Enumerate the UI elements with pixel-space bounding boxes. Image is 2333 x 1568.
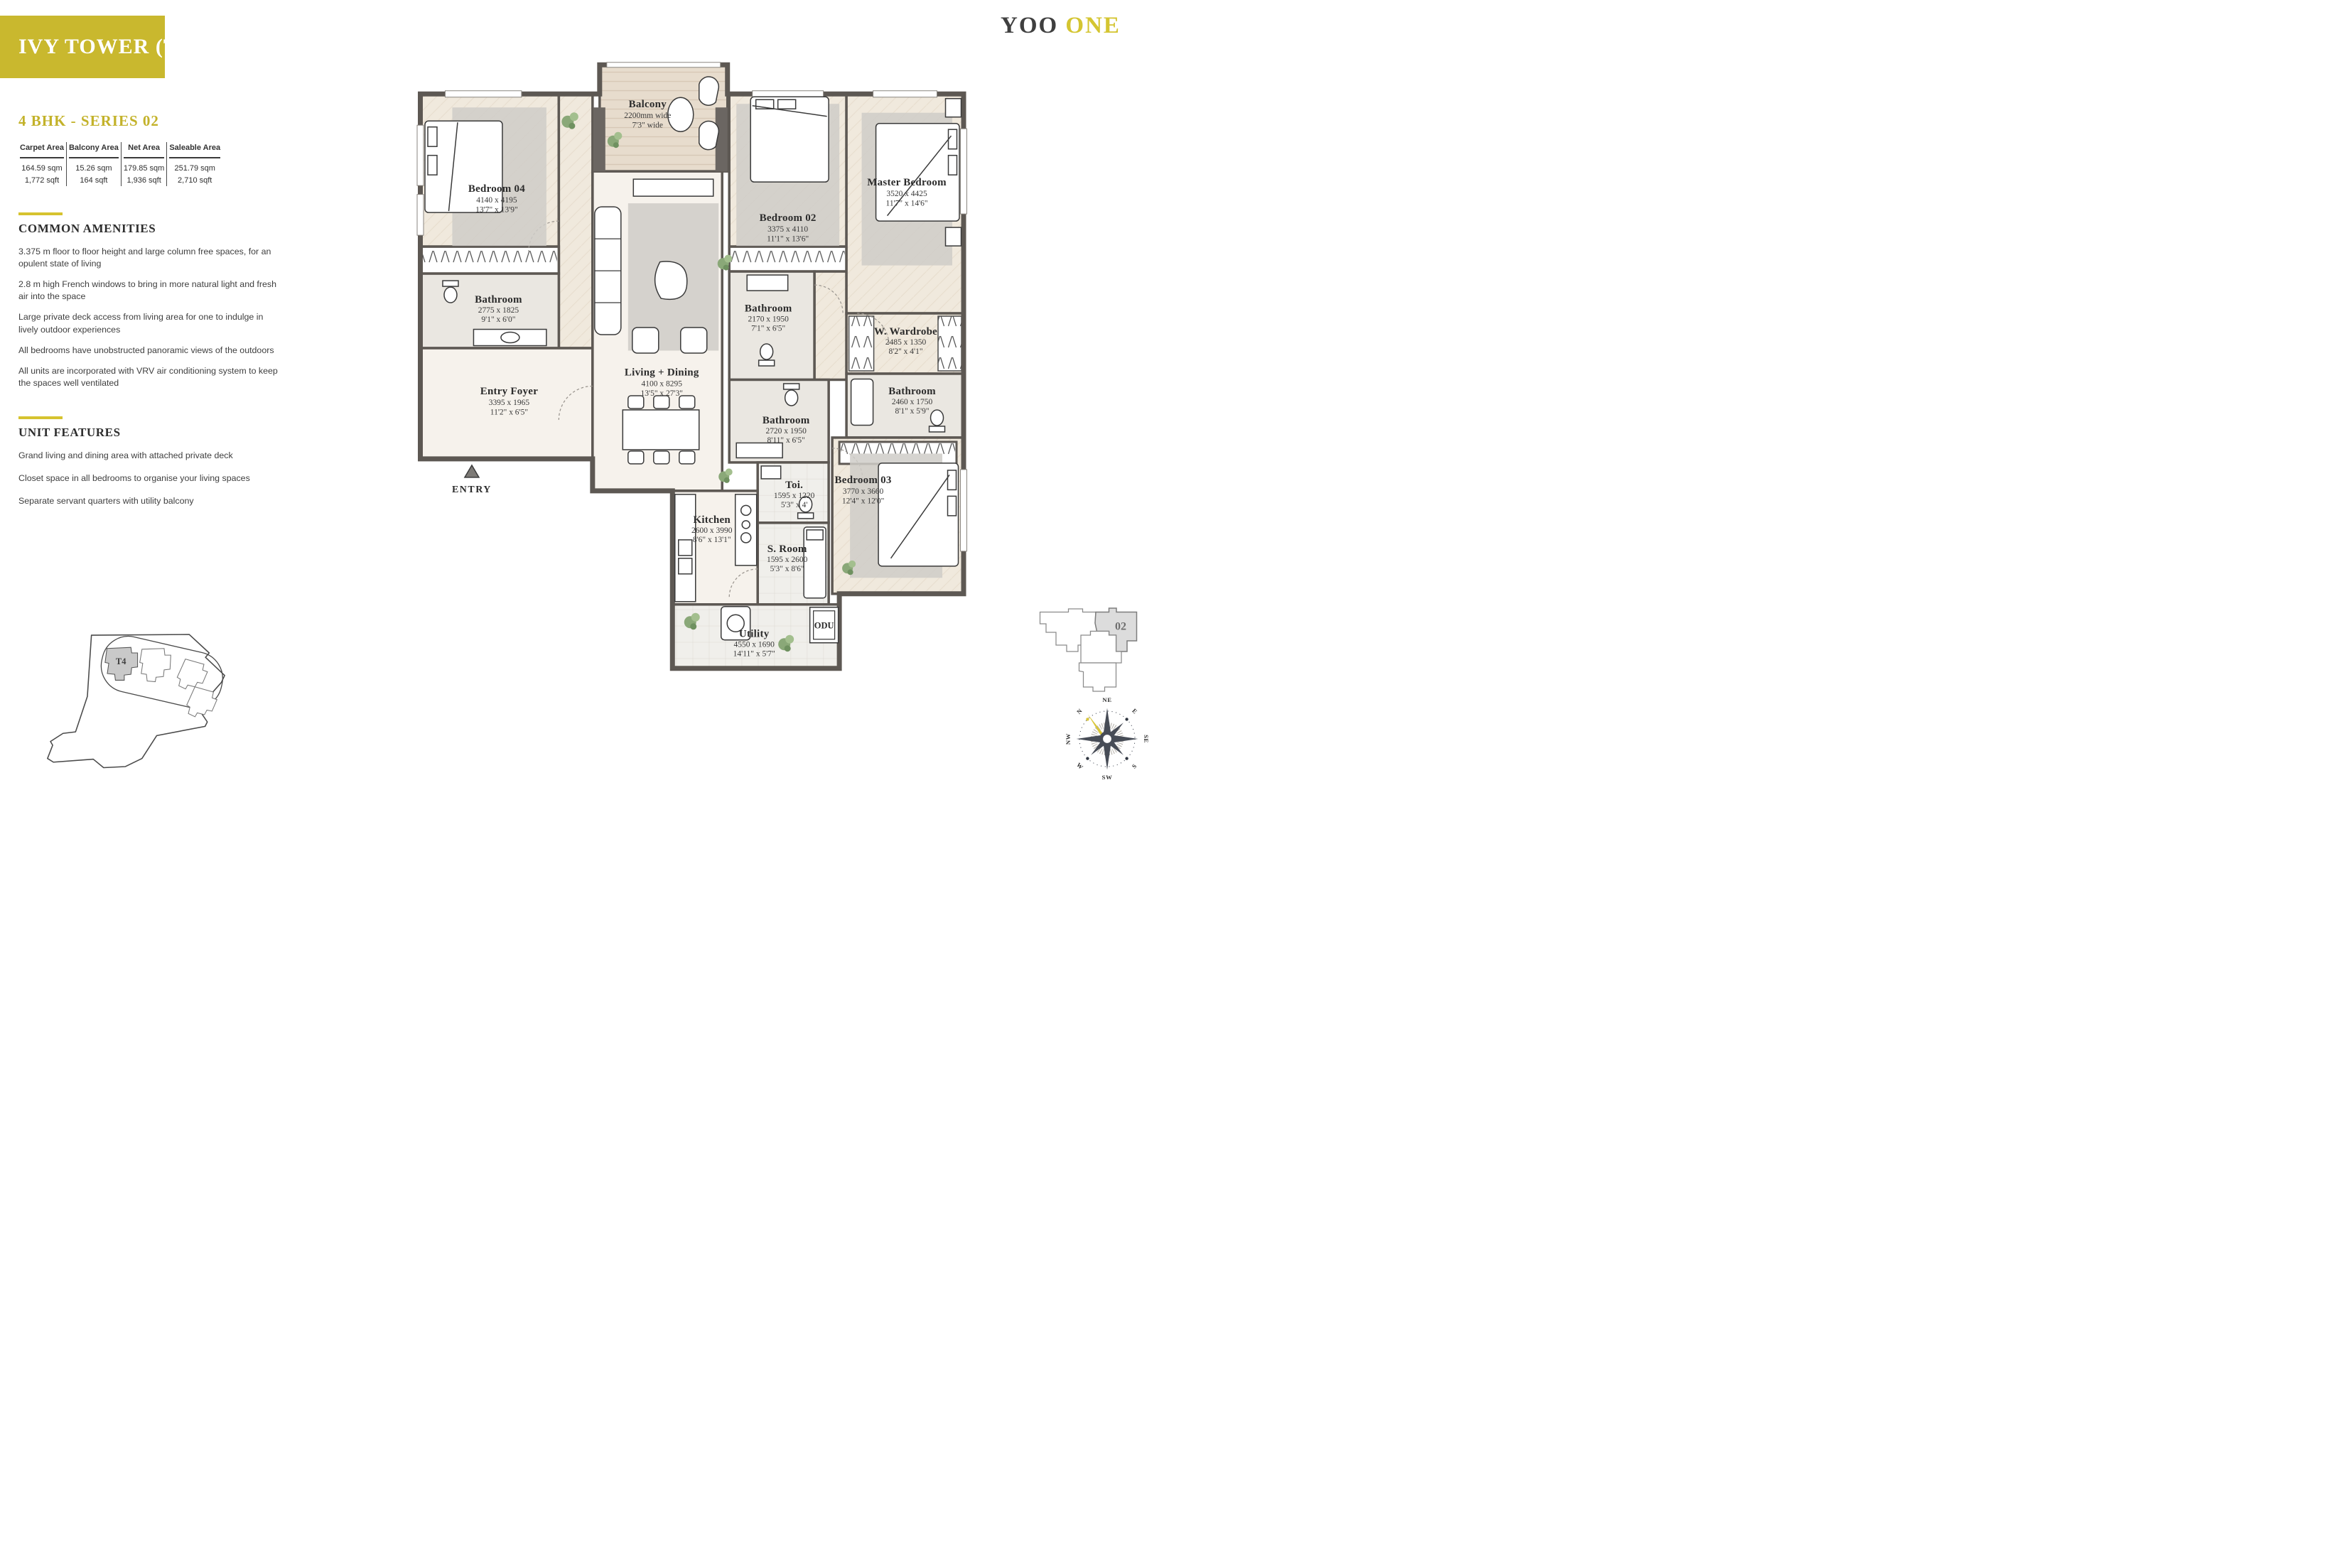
svg-text:NW: NW (1065, 733, 1072, 745)
bed (750, 97, 829, 182)
svg-text:Bedroom 03: Bedroom 03 (835, 475, 892, 486)
wardrobe-unit-left-hatch (849, 316, 874, 371)
room-label-bathroom-servant: Bathroom 2720 x 1950 8'11" x 6'5" (763, 415, 810, 445)
svg-text:SE: SE (1143, 735, 1150, 743)
svg-text:S: S (1131, 762, 1138, 770)
svg-text:8'2" x 4'1": 8'2" x 4'1" (889, 347, 923, 356)
dining-table (623, 410, 699, 450)
room-label-bathroom02: Bathroom 2170 x 1950 7'1" x 6'5" (745, 303, 792, 333)
svg-text:11'1" x 13'6": 11'1" x 13'6" (767, 235, 809, 244)
area-col-balcony: Balcony Area 15.26 sqm 164 sqft (66, 142, 121, 186)
svg-text:8'6" x 13'1": 8'6" x 13'1" (693, 536, 731, 544)
pillow (948, 496, 957, 515)
svg-text:Bedroom 02: Bedroom 02 (760, 212, 817, 224)
toilet-icon (443, 281, 458, 303)
toilet-bowl (760, 344, 773, 359)
area-sqm: 251.79 sqm (169, 163, 220, 175)
compass-dot-w (1086, 757, 1089, 759)
area-col-values: 179.85 sqm 1,936 sqft (124, 158, 164, 186)
svg-text:9'1" x 6'0": 9'1" x 6'0" (481, 315, 515, 324)
balcony-railing (607, 63, 721, 67)
area-table: Carpet Area 164.59 sqm 1,772 sqft Balcon… (18, 142, 193, 186)
area-col-header: Saleable Area (169, 142, 220, 158)
floor-plan: Balcony 2200mm wide 7'3" wide Bedroom 04… (415, 54, 971, 672)
odu-label: ODU (814, 621, 834, 631)
pillow (778, 99, 796, 109)
svg-text:Kitchen: Kitchen (693, 514, 731, 526)
unit-outline-bottom (1079, 663, 1116, 691)
compass-svg: NE E SE S SW W NW N (1063, 695, 1151, 783)
compass-dot-s (1125, 757, 1128, 759)
entry-marker: ENTRY (452, 465, 492, 495)
area-col-header: Net Area (124, 142, 164, 158)
amenity-item: Large private deck access from living ar… (18, 311, 283, 335)
pillow (807, 530, 823, 540)
feature-item: Grand living and dining area with attach… (18, 450, 283, 462)
entry-label: ENTRY (452, 485, 492, 495)
room-label-utility: Utility 4550 x 1690 14'11" x 5'7" (733, 629, 775, 659)
amenity-item: 3.375 m floor to floor height and large … (18, 246, 283, 270)
toilet-tank (443, 281, 458, 286)
brand-logo: YOO ONE (1001, 13, 1121, 39)
amenity-item: 2.8 m high French windows to bring in mo… (18, 279, 283, 303)
toilet-bowl (444, 287, 457, 303)
svg-text:Bathroom: Bathroom (475, 294, 522, 306)
tower-title-block: IVY TOWER (T4) (0, 16, 165, 78)
nightstand (946, 99, 961, 117)
svg-text:Bathroom: Bathroom (763, 415, 810, 426)
toilet-bowl (785, 390, 798, 406)
window (961, 129, 967, 214)
area-sqm: 179.85 sqm (124, 163, 164, 175)
feature-item: Separate servant quarters with utility b… (18, 495, 283, 507)
floor-plan-svg: Balcony 2200mm wide 7'3" wide Bedroom 04… (415, 54, 971, 672)
svg-text:8'11" x 6'5": 8'11" x 6'5" (767, 436, 805, 445)
svg-text:S. Room: S. Room (767, 544, 807, 555)
sink (501, 332, 519, 343)
area-sqft: 1,772 sqft (20, 175, 64, 187)
svg-text:2200mm wide: 2200mm wide (624, 112, 671, 120)
svg-text:12'4" x 12'0": 12'4" x 12'0" (842, 497, 884, 505)
brand-secondary: ONE (1065, 13, 1121, 38)
compass-dot-n (1086, 718, 1089, 720)
pillow (949, 129, 957, 148)
common-amenities-list: 3.375 m floor to floor height and large … (18, 246, 283, 398)
svg-text:13'7" x 13'9": 13'7" x 13'9" (475, 206, 517, 215)
toilet-icon (759, 344, 775, 366)
entry-arrow-icon (465, 465, 479, 477)
series-title: 4 BHK - SERIES 02 (18, 112, 159, 130)
sink-counter (851, 379, 873, 425)
unit-key-plan-svg: 02 (1032, 595, 1160, 709)
room-label-bathroom04: Bathroom 2775 x 1825 9'1" x 6'0" (475, 294, 522, 324)
brand-primary: YOO (1001, 13, 1058, 38)
svg-text:11'7" x 14'6": 11'7" x 14'6" (886, 200, 928, 208)
area-col-values: 15.26 sqm 164 sqft (69, 158, 119, 186)
toilet-icon (784, 384, 799, 406)
corridor-floor (814, 271, 846, 379)
svg-text:2485 x 1350: 2485 x 1350 (885, 338, 927, 347)
balcony-table (668, 97, 694, 131)
area-col-header: Balcony Area (69, 142, 119, 158)
armchair (681, 328, 707, 353)
svg-text:Bathroom: Bathroom (888, 386, 936, 397)
unit-features-list: Grand living and dining area with attach… (18, 450, 283, 518)
feature-item: Closet space in all bedrooms to organise… (18, 472, 283, 485)
svg-text:3395 x 1965: 3395 x 1965 (489, 399, 530, 407)
area-col-carpet: Carpet Area 164.59 sqm 1,772 sqft (18, 142, 66, 186)
window (417, 195, 424, 235)
toilet-bowl (931, 410, 944, 426)
coffee-table (655, 261, 687, 299)
window (417, 125, 424, 185)
svg-text:5'3" x 8'6": 5'3" x 8'6" (770, 565, 804, 573)
svg-text:Living + Dining: Living + Dining (625, 367, 699, 378)
svg-text:8'1" x 5'9": 8'1" x 5'9" (895, 407, 930, 416)
svg-text:Entry Foyer: Entry Foyer (480, 386, 538, 397)
svg-text:E: E (1131, 707, 1139, 715)
pillow (428, 127, 437, 146)
svg-text:3770 x 3660: 3770 x 3660 (843, 487, 884, 496)
vanity (736, 443, 782, 458)
toilet-tank (759, 360, 775, 366)
balcony-chair (699, 121, 719, 150)
svg-text:2775 x 1825: 2775 x 1825 (478, 306, 519, 315)
wall-pillar (593, 107, 605, 171)
area-sqft: 2,710 sqft (169, 175, 220, 187)
area-col-values: 164.59 sqm 1,772 sqft (20, 158, 64, 186)
brochure-page: IVY TOWER (T4) 4 BHK - SERIES 02 Carpet … (0, 0, 1166, 784)
window (445, 91, 521, 97)
compass-dot-e (1125, 718, 1128, 720)
common-amenities-heading: COMMON AMENITIES (18, 222, 156, 236)
svg-text:4100 x 8295: 4100 x 8295 (642, 379, 683, 388)
tv-console (633, 179, 713, 196)
area-sqft: 164 sqft (69, 175, 119, 187)
svg-text:1595 x 2600: 1595 x 2600 (767, 556, 808, 564)
dining-chair (654, 451, 669, 464)
dining-chair (628, 451, 644, 464)
svg-text:W. Wardrobe: W. Wardrobe (874, 326, 937, 337)
room-label-bedroom03: Bedroom 03 3770 x 3660 12'4" x 12'0" (835, 475, 892, 505)
unit-features-heading: UNIT FEATURES (18, 426, 121, 440)
amenity-item: All bedrooms have unobstructed panoramic… (18, 345, 283, 357)
hallway-floor (559, 94, 592, 348)
svg-text:Balcony: Balcony (629, 99, 667, 110)
svg-text:Master Bedroom: Master Bedroom (867, 177, 947, 188)
amenity-item: All units are incorporated with VRV air … (18, 365, 283, 389)
svg-text:Bathroom: Bathroom (745, 303, 792, 315)
bedroom04-wardrobe-hatch (422, 249, 557, 272)
site-key-plan: T4 (31, 611, 260, 771)
balcony-chair (699, 77, 719, 105)
room-label-bedroom04: Bedroom 04 4140 x 4195 13'7" x 13'9" (468, 183, 525, 214)
svg-text:W: W (1075, 761, 1085, 771)
unit-outline-middle (1081, 632, 1121, 664)
wardrobe-unit-right-hatch (938, 316, 961, 371)
sink (761, 466, 780, 479)
svg-text:SW: SW (1102, 774, 1113, 781)
unit-key-plan: 02 (1032, 595, 1160, 709)
svg-text:5'3" x 4': 5'3" x 4' (781, 501, 808, 509)
divider-rule (18, 212, 63, 215)
armchair (632, 328, 659, 353)
unit-02-label: 02 (1115, 621, 1126, 633)
toilet-tank (798, 513, 814, 519)
compass-hub (1101, 733, 1114, 745)
area-col-values: 251.79 sqm 2,710 sqft (169, 158, 220, 186)
svg-text:2720 x 1950: 2720 x 1950 (765, 427, 807, 436)
page-title: IVY TOWER (T4) (18, 35, 198, 59)
area-col-header: Carpet Area (20, 142, 64, 158)
svg-text:7'1" x 6'5": 7'1" x 6'5" (751, 325, 785, 333)
svg-text:Toi.: Toi. (785, 480, 803, 491)
kitchen-sink (679, 558, 692, 574)
room-label-kitchen: Kitchen 2600 x 3990 8'6" x 13'1" (691, 514, 733, 544)
room-label-bedroom02: Bedroom 02 3375 x 4110 11'1" x 13'6" (760, 212, 817, 243)
window (961, 470, 967, 551)
svg-text:1595 x 1220: 1595 x 1220 (774, 492, 815, 500)
svg-text:2460 x 1750: 2460 x 1750 (892, 398, 933, 406)
toilet-tank (930, 426, 945, 432)
divider-rule (18, 416, 63, 419)
toilet-tank (784, 384, 799, 389)
svg-text:7'3" wide: 7'3" wide (632, 121, 663, 130)
pillow (428, 156, 437, 175)
svg-text:NE: NE (1102, 696, 1111, 703)
svg-text:N: N (1075, 707, 1084, 715)
kitchen-sink (679, 540, 692, 556)
area-sqft: 1,936 sqft (124, 175, 164, 187)
nightstand (946, 227, 961, 246)
bedroom02-wardrobe-hatch (731, 249, 845, 270)
pillow (948, 470, 957, 490)
area-sqm: 164.59 sqm (20, 163, 64, 175)
area-col-net: Net Area 179.85 sqm 1,936 sqft (121, 142, 166, 186)
window (753, 91, 824, 97)
tower-t4-label: T4 (116, 656, 126, 666)
svg-text:2170 x 1950: 2170 x 1950 (748, 315, 789, 324)
svg-text:3375 x 4110: 3375 x 4110 (767, 225, 808, 234)
compass-rose: NE E SE S SW W NW N (1063, 695, 1151, 783)
pillow (949, 156, 957, 175)
vanity (747, 275, 787, 291)
site-key-plan-svg: T4 (31, 611, 260, 771)
svg-text:Utility: Utility (739, 629, 770, 640)
room-label-servant-room: S. Room 1595 x 2600 5'3" x 8'6" (767, 544, 808, 573)
svg-text:14'11" x 5'7": 14'11" x 5'7" (733, 650, 775, 659)
svg-text:4140 x 4195: 4140 x 4195 (476, 196, 517, 205)
svg-text:Bedroom 04: Bedroom 04 (468, 183, 525, 195)
toilet-icon (930, 410, 945, 432)
area-sqm: 15.26 sqm (69, 163, 119, 175)
svg-text:4550 x 1690: 4550 x 1690 (733, 641, 775, 649)
svg-text:13'5" x 27'3": 13'5" x 27'3" (641, 389, 683, 398)
svg-text:3520 x 4425: 3520 x 4425 (886, 190, 927, 198)
dining-chair (679, 451, 695, 464)
area-col-saleable: Saleable Area 251.79 sqm 2,710 sqft (166, 142, 222, 186)
svg-text:11'2" x 6'5": 11'2" x 6'5" (490, 408, 528, 416)
room-label-master-bathroom: Bathroom 2460 x 1750 8'1" x 5'9" (888, 386, 936, 416)
svg-text:2600 x 3990: 2600 x 3990 (691, 526, 733, 535)
window (873, 91, 937, 97)
